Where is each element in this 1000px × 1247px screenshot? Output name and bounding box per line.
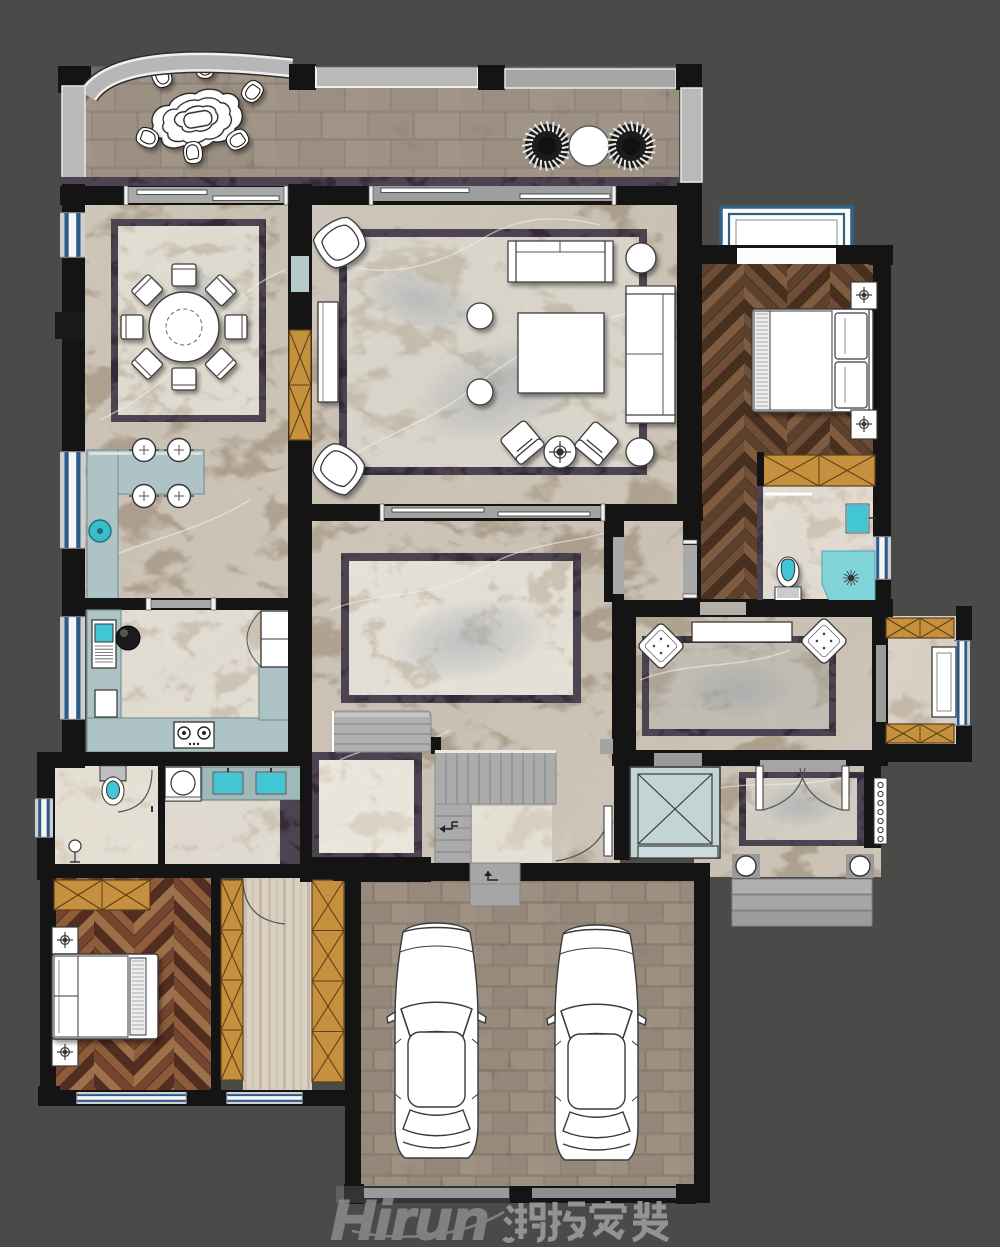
svg-text:Hirun: Hirun xyxy=(331,1188,489,1247)
